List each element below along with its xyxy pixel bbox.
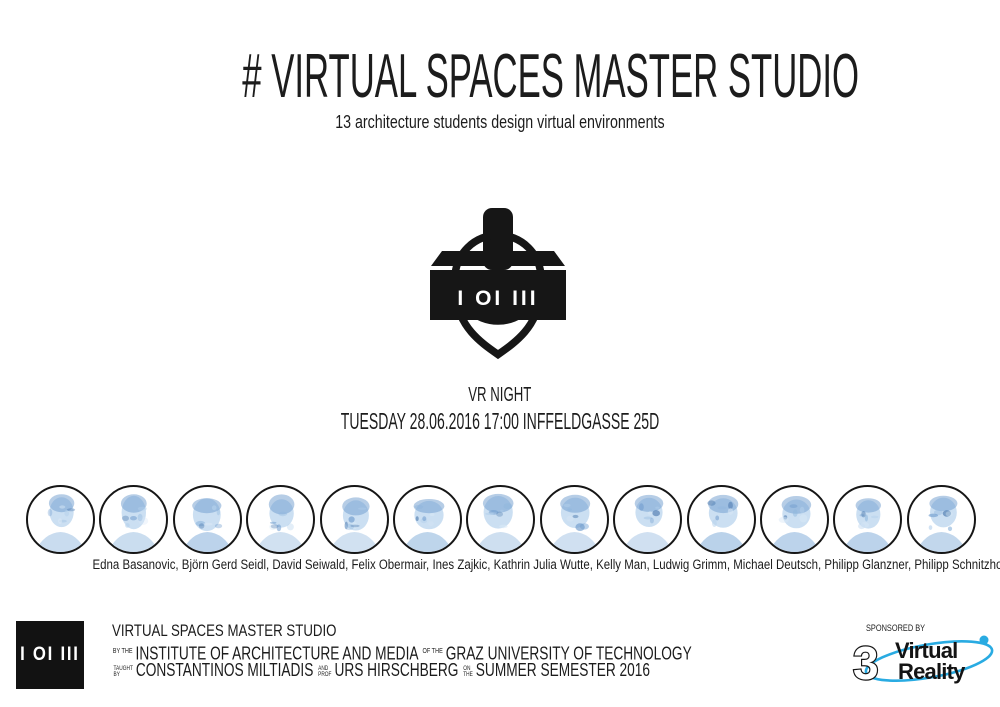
footer-logo: I OI III (16, 621, 84, 689)
portrait-avatar (393, 485, 462, 554)
portrait-avatar (907, 485, 976, 554)
portrait-avatar (320, 485, 389, 554)
studio-name: VIRTUAL SPACES MASTER STUDIO (112, 621, 336, 641)
by-the-label: BY THE (113, 646, 133, 655)
three-logo-icon: 3 (853, 637, 879, 689)
page-title-text: # VIRTUAL SPACES MASTER STUDIO (242, 46, 859, 108)
headset-band-label: I OI III (457, 287, 538, 310)
orbit-dot-icon (980, 636, 989, 645)
taught-by-label: TAUGHTBY (113, 666, 132, 678)
event-datetime-location: TUESDAY 28.06.2016 17:00 INFFELDGASSE 25… (0, 408, 1000, 434)
footer-text: VIRTUAL SPACES MASTER STUDIO BY THEINSTI… (112, 621, 712, 680)
semester-label: SUMMER SEMESTER 2016 (476, 659, 650, 680)
portrait-avatar (246, 485, 315, 554)
page-title: # VIRTUAL SPACES MASTER STUDIO (0, 46, 1000, 108)
sponsor-logo: 3 Virtual Reality (851, 631, 996, 689)
footer-logo-label: I OI III (20, 644, 80, 666)
on-the-label: ONTHE (463, 666, 473, 678)
event-name: VR NIGHT (0, 384, 1000, 406)
credits-line: Edna Basanovic, Björn Gerd Seidl, David … (0, 556, 1000, 573)
portrait-avatar (833, 485, 902, 554)
portraits-row (26, 484, 976, 554)
portrait-avatar (466, 485, 535, 554)
of-the-label: OF THE (423, 646, 443, 655)
portrait-avatar (99, 485, 168, 554)
portrait-avatar (687, 485, 756, 554)
portrait-avatar (26, 485, 95, 554)
teacher-2-name: URS HIRSCHBERG (334, 659, 458, 680)
portrait-avatar (613, 485, 682, 554)
portrait-avatar (760, 485, 829, 554)
portrait-avatar (173, 485, 242, 554)
portrait-avatar (540, 485, 609, 554)
poster: { "poster": { "title": "# VIRTUAL SPACES… (0, 0, 1000, 707)
footer-studio-line: VIRTUAL SPACES MASTER STUDIO (112, 621, 712, 641)
footer-institute-line: BY THEINSTITUTE OF ARCHITECTURE AND MEDI… (112, 641, 712, 661)
footer-teachers-line: TAUGHTBYCONSTANTINOS MILTIADIS ANDPROFUR… (112, 660, 712, 680)
headset-visor-top (431, 251, 565, 266)
teacher-1-name: CONSTANTINOS MILTIADIS (136, 659, 313, 680)
page-subtitle: 13 architecture students design virtual … (0, 111, 1000, 133)
sponsor-name-line2: Reality (898, 659, 966, 684)
vr-headset-icon: I OI III (428, 203, 568, 365)
and-prof-label: ANDPROF (318, 666, 331, 678)
